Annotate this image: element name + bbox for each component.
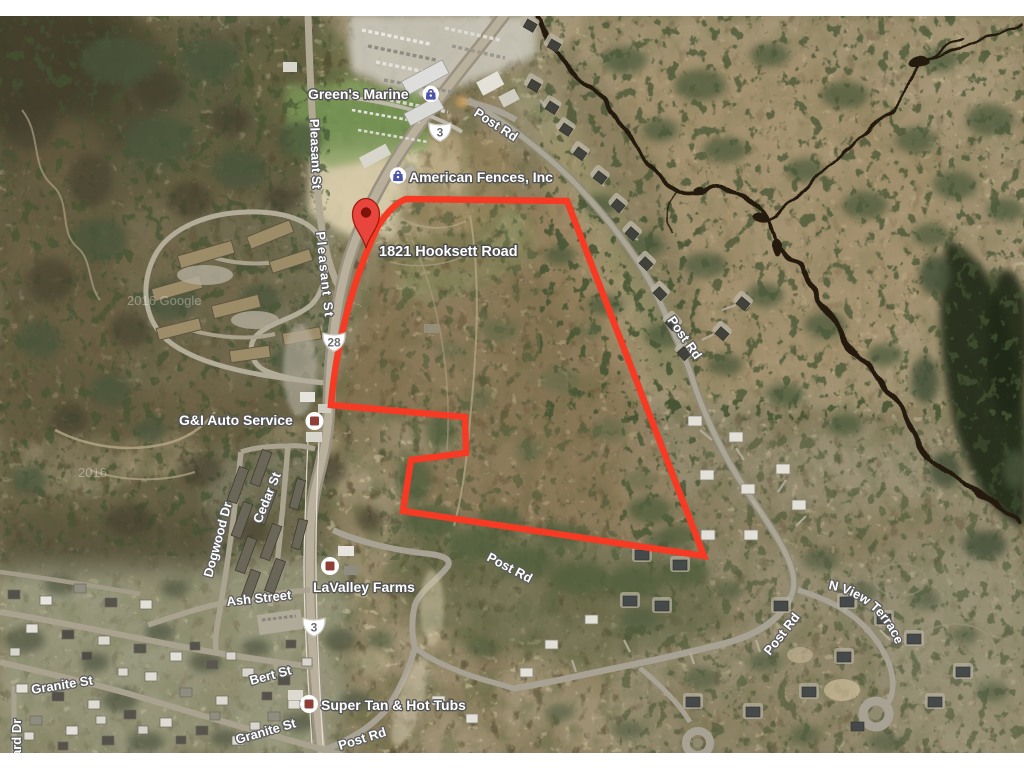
svg-text:Pleasant St: Pleasant St — [307, 119, 324, 190]
svg-text:2016: 2016 — [78, 465, 107, 480]
svg-text:2016 Google: 2016 Google — [127, 293, 201, 308]
svg-text:3: 3 — [437, 125, 444, 139]
svg-text:G&I Auto Service: G&I Auto Service — [179, 412, 293, 428]
svg-text:Green's Marine: Green's Marine — [308, 86, 409, 102]
svg-text:ard Dr: ard Dr — [9, 719, 24, 757]
svg-text:American Fences, Inc: American Fences, Inc — [409, 169, 553, 185]
svg-text:Super Tan & Hot Tubs: Super Tan & Hot Tubs — [321, 697, 466, 713]
svg-text:LaValley Farms: LaValley Farms — [313, 579, 415, 595]
svg-text:1821 Hooksett Road: 1821 Hooksett Road — [379, 244, 518, 260]
svg-text:28: 28 — [327, 336, 341, 350]
svg-text:3: 3 — [311, 620, 318, 634]
